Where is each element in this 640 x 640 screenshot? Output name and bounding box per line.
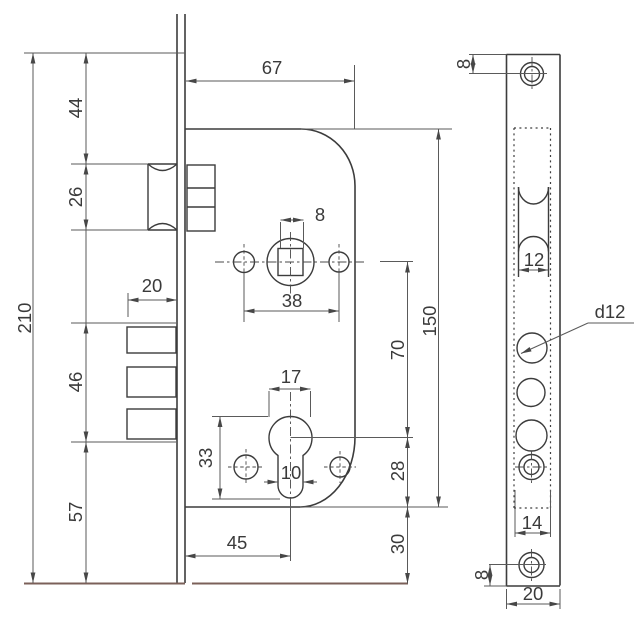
dim-label-spindle-square: 8 xyxy=(315,204,325,225)
dim-label-cylinder-slot-width: 10 xyxy=(281,462,302,483)
dim-label-latch-height: 26 xyxy=(65,187,86,208)
side-view: 210 44 26 46 57 20 67 8 xyxy=(14,14,452,584)
drawing-canvas: 210 44 26 46 57 20 67 8 xyxy=(0,0,640,640)
dim-label-top-hole-offset: 8 xyxy=(453,59,474,69)
top-screw-hole xyxy=(469,57,547,91)
dim-label-body-height: 150 xyxy=(419,306,440,337)
dim-label-deadbolt-height: 46 xyxy=(65,372,86,393)
dim-label-body-width: 67 xyxy=(262,57,283,78)
deadbolt xyxy=(71,323,176,442)
dim-label-cylinder-width: 17 xyxy=(281,366,302,387)
dim-label-cylinder-height: 33 xyxy=(195,448,216,469)
middle-screw-hole xyxy=(515,451,548,483)
dim-label-bottom-hole-offset: 8 xyxy=(471,570,492,580)
dim-label-total-height: 210 xyxy=(14,303,35,334)
faceplate-dimensions: 8 12 d12 14 8 20 xyxy=(453,55,634,610)
dim-label-latch-cutout-width: 12 xyxy=(524,249,545,270)
dim-label-body-bottom-to-plate-end: 30 xyxy=(387,534,408,555)
dim-label-cutout-width: 14 xyxy=(522,512,543,533)
bottom-screw-hole xyxy=(489,549,546,581)
lock-technical-drawing: 210 44 26 46 57 20 67 8 xyxy=(0,0,640,640)
dim-label-plate-width: 20 xyxy=(523,583,544,604)
latch-bolt xyxy=(71,164,215,231)
faceplate-view: 8 12 d12 14 8 20 xyxy=(453,55,634,610)
dim-label-spindle-to-cylinder: 70 xyxy=(387,340,408,361)
faceplate-edge xyxy=(177,14,185,583)
dim-label-top-to-latch: 44 xyxy=(65,98,86,119)
side-view-dimensions: 210 44 26 46 57 20 67 8 xyxy=(14,53,440,584)
spindle-hole xyxy=(215,232,364,294)
dim-label-hole-diameter: d12 xyxy=(595,301,626,322)
dim-label-hole-spacing: 38 xyxy=(282,290,303,311)
dim-label-deadbolt-throw: 20 xyxy=(142,275,163,296)
dim-label-backset: 45 xyxy=(227,532,248,553)
clearance-holes xyxy=(516,333,547,451)
dim-label-cylinder-to-body-bottom: 28 xyxy=(387,461,408,482)
dim-label-bottom-margin: 57 xyxy=(65,502,86,523)
